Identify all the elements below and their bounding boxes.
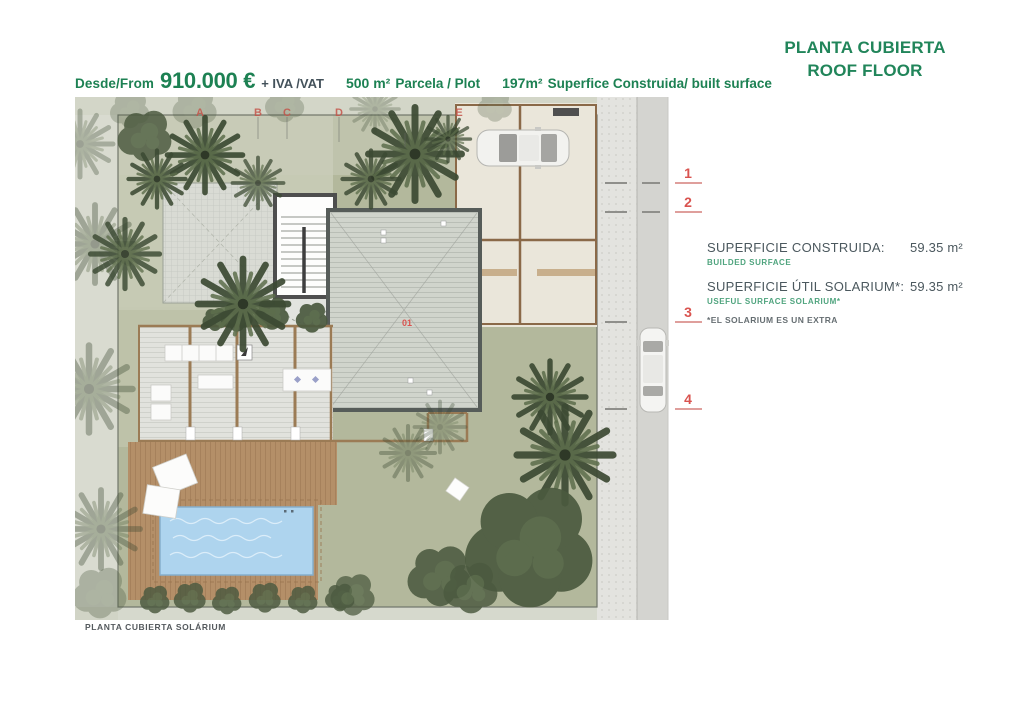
plan-caption: PLANTA CUBIERTA SOLÁRIUM — [85, 622, 226, 632]
marker-underlines — [675, 183, 702, 409]
grid-letter-c: C — [283, 107, 291, 119]
price-vat-label: + IVA /VAT — [261, 76, 324, 91]
grid-letter-a: A — [196, 107, 204, 119]
unit-number-label: 01 — [402, 318, 412, 328]
grid-letter-d: D — [335, 107, 343, 119]
spec-note: *EL SOLARIUM ES UN EXTRA — [707, 315, 987, 325]
marker-3: 3 — [684, 304, 692, 320]
page-title: PLANTA CUBIERTA ROOF FLOOR — [757, 36, 973, 83]
specs-panel: SUPERFICIE CONSTRUIDA: 59.35 m² BUILDED … — [707, 240, 987, 325]
page-title-line2: ROOF FLOOR — [757, 59, 973, 82]
spec-sublabel: USEFUL SURFACE SOLARIUM* — [707, 297, 987, 306]
brochure-page: Desde/From 910.000 € + IVA /VAT 500 m² P… — [0, 0, 1024, 724]
plot-size-label: Parcela / Plot — [395, 76, 480, 91]
site-plan: A B C D E 01 1 2 3 4 — [75, 97, 710, 620]
built-size-value: 197m² — [502, 75, 542, 91]
swimming-pool — [160, 507, 313, 575]
marker-4: 4 — [684, 391, 692, 407]
parked-car-top-view — [477, 127, 569, 169]
street-car-top-view — [637, 328, 669, 412]
page-title-line1: PLANTA CUBIERTA — [757, 36, 973, 59]
plot-size-value: 500 m² — [346, 75, 390, 91]
spec-label: SUPERFICIE CONSTRUIDA: — [707, 240, 910, 255]
spec-row-constructed: SUPERFICIE CONSTRUIDA: 59.35 m² — [707, 240, 987, 255]
spec-label: SUPERFICIE ÚTIL SOLARIUM*: — [707, 279, 910, 294]
grid-letter-e: E — [455, 107, 462, 119]
sidewalk — [597, 97, 637, 620]
marker-1: 1 — [684, 165, 692, 181]
price-amount: 910.000 € — [160, 68, 255, 94]
spec-value: 59.35 m² — [910, 279, 963, 294]
price-from-label: Desde/From — [75, 76, 154, 91]
wall-segment — [553, 108, 579, 116]
marker-2: 2 — [684, 194, 692, 210]
price-line: Desde/From 910.000 € + IVA /VAT 500 m² P… — [75, 68, 772, 94]
built-size-label: Superfice Construida/ built surface — [548, 76, 772, 91]
spec-value: 59.35 m² — [910, 240, 963, 255]
site-plan-drawing: A B C D E 01 1 2 3 4 — [75, 97, 710, 620]
solarium-roof — [328, 210, 480, 410]
grid-letter-b: B — [254, 107, 262, 119]
spec-sublabel: BUILDED SURFACE — [707, 258, 987, 267]
spec-row-solarium: SUPERFICIE ÚTIL SOLARIUM*: 59.35 m² — [707, 279, 987, 294]
